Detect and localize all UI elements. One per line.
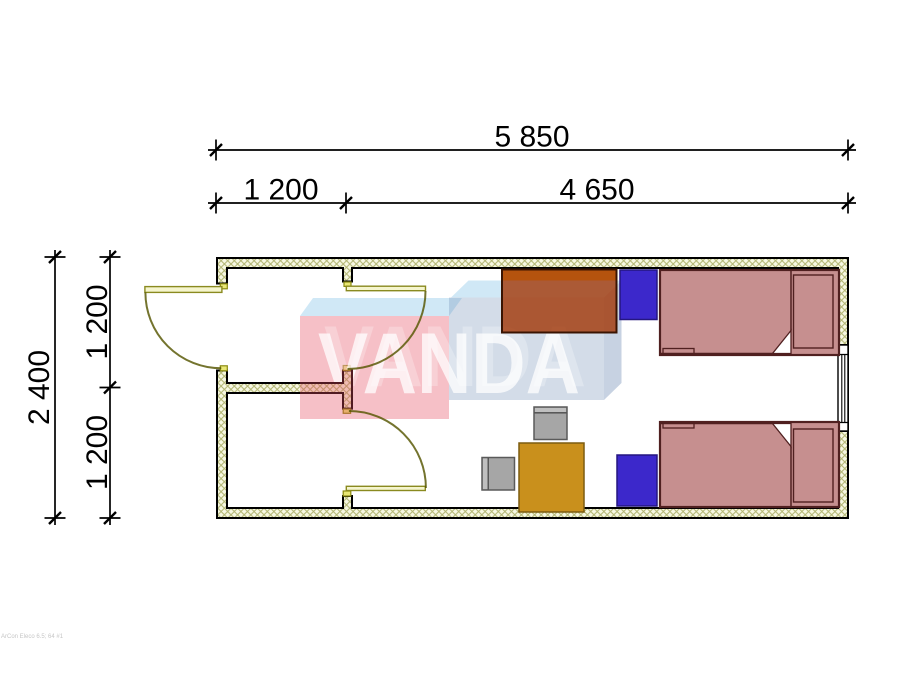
svg-text:1 200: 1 200 [243,174,318,207]
svg-text:1 200: 1 200 [81,284,114,359]
svg-text:ArCon Eleco 6.5; 64 #1: ArCon Eleco 6.5; 64 #1 [1,634,64,640]
svg-text:4 650: 4 650 [559,174,634,207]
svg-text:1 200: 1 200 [81,415,114,490]
svg-text:5 850: 5 850 [494,121,569,154]
svg-text:2 400: 2 400 [23,350,56,425]
